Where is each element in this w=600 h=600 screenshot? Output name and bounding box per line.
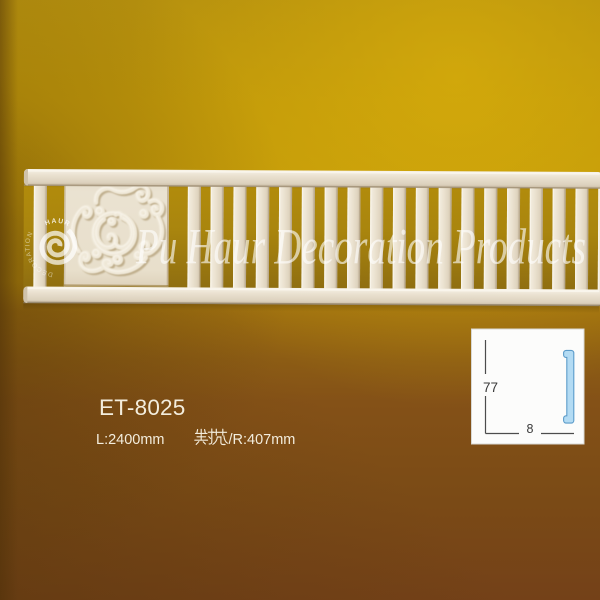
svg-text:/R:407mm: /R:407mm bbox=[229, 432, 296, 448]
svg-text:ET-8025: ET-8025 bbox=[99, 395, 185, 420]
svg-text:8: 8 bbox=[527, 422, 534, 436]
svg-text:L:2400mm: L:2400mm bbox=[96, 432, 165, 448]
svg-text:Pu Haur Decoration Products: Pu Haur Decoration Products bbox=[135, 220, 586, 276]
svg-text:77: 77 bbox=[483, 380, 498, 395]
